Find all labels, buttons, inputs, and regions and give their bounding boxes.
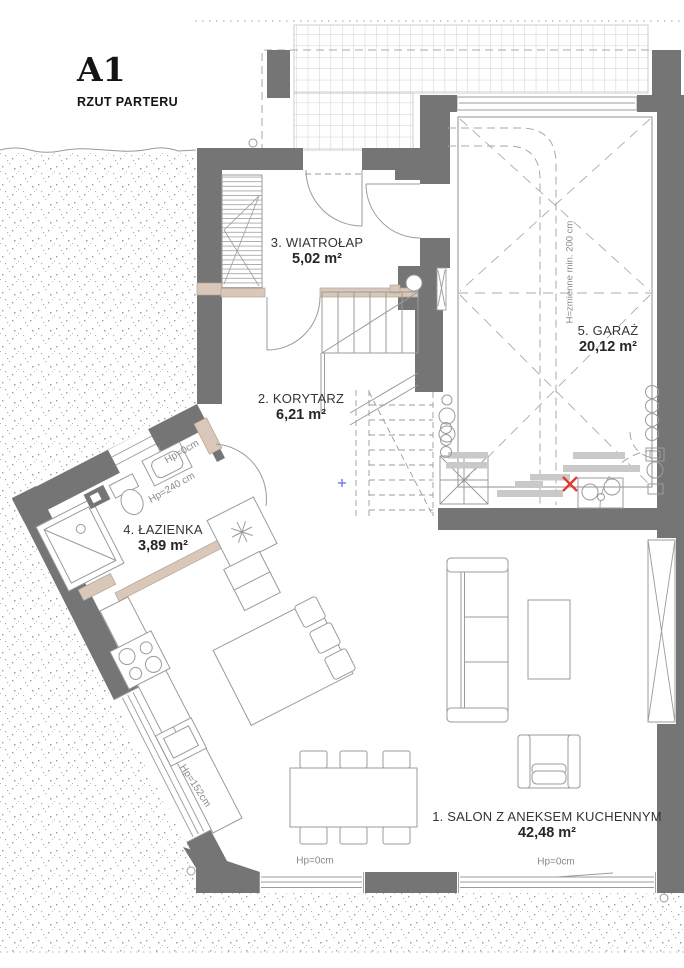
garage-fixtures [439,386,664,509]
room-label-garaz: 5. GARAŻ 20,12 m² [578,323,639,355]
sheet-code: A1 [77,50,126,89]
sheet-subtitle: RZUT PARTERU [77,95,178,109]
salon-windows [260,872,656,893]
garage-door [457,97,637,110]
room-label-salon: 1. SALON Z ANEKSEM KUCHENNYM 42,48 m² [432,809,662,841]
garage-ceiling-marks [458,119,652,485]
floor-plan-sheet: A1 RZUT PARTERU 3. WIATROŁAP 5,02 m² 2. … [0,0,684,968]
chimney-flue [406,275,422,291]
garage-step-marks [446,452,640,497]
radiator-symbol [222,175,262,288]
room-label-korytarz: 2. KORYTARZ 6,21 m² [258,391,344,423]
blue-plus-marker [338,479,346,487]
room-label-wiatrolap: 3. WIATROŁAP 5,02 m² [271,235,363,267]
driveway-grid [294,25,648,150]
room-label-lazienka: 4. ŁAZIENKA 3,89 m² [123,522,203,554]
armchair [518,735,580,788]
toilet [109,474,149,520]
sofa [447,558,508,722]
annotation-window-right: Hp=0cm [537,857,575,868]
garage-car-path [448,128,656,508]
washing-machine [207,497,277,567]
coffee-table [528,600,570,679]
dining-table [290,751,417,844]
annotation-window-left: Hp=0cm [296,856,334,867]
annotation-garage-height: H=zmienne min. 200 cm [565,221,576,324]
garage-slab [458,117,652,487]
wardrobe [647,538,676,724]
garage-service-door [437,268,446,310]
